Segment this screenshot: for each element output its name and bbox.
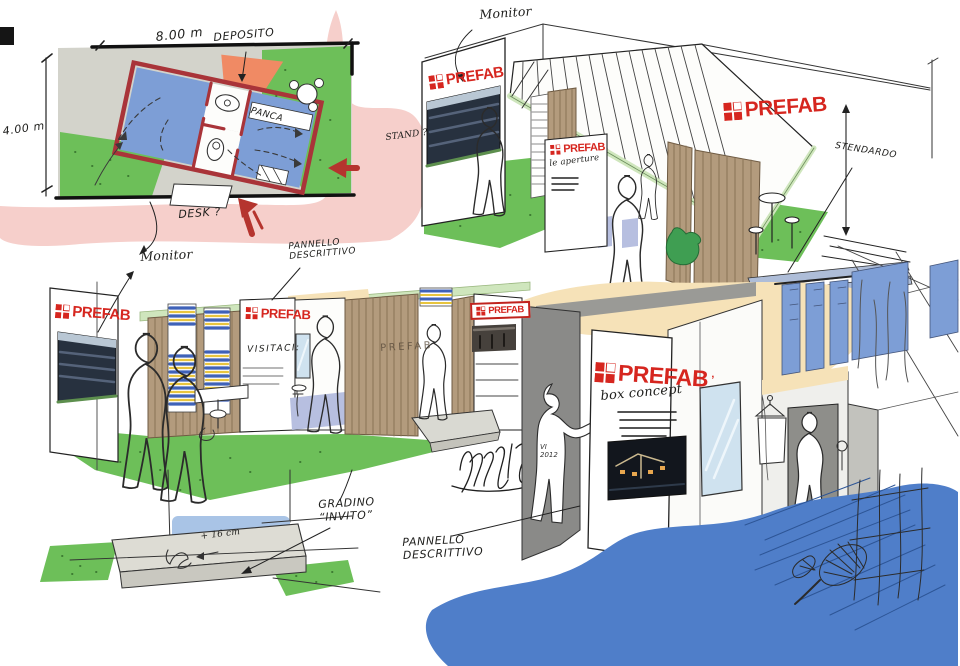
prefab-logo-icon — [723, 102, 742, 121]
concept-sketch-sheet: 8.00 m DEPOSITO 4.00 m PANCA DESK ? Moni… — [0, 0, 960, 666]
prefab-logo-showroom-pillar: PREFAB — [245, 305, 310, 322]
prefab-logo-icon — [55, 303, 70, 318]
prefab-logo-icon — [594, 361, 615, 382]
interior-pannello-label: PANNELLO DESCRITTIVO — [402, 533, 484, 562]
signature-date: VI 2012 — [540, 444, 558, 459]
prefab-logo-icon — [246, 306, 258, 318]
signature-year: 2012 — [540, 452, 558, 460]
step-gradino-label: GRADINO “INVITO” — [318, 496, 376, 524]
prefab-logo-icon — [550, 144, 561, 155]
showroom-monitor-label: Monitor — [140, 247, 193, 264]
showroom-visitaci-label: VISITACI: — [247, 343, 301, 355]
prefab-logo-icon — [476, 306, 485, 315]
prefab-logo-showroom-banner: PREFAB — [470, 301, 530, 320]
prefab-logo-icon — [428, 74, 444, 90]
showroom-perspective-sketch — [50, 268, 534, 503]
sample-shelf-stack — [168, 304, 196, 412]
